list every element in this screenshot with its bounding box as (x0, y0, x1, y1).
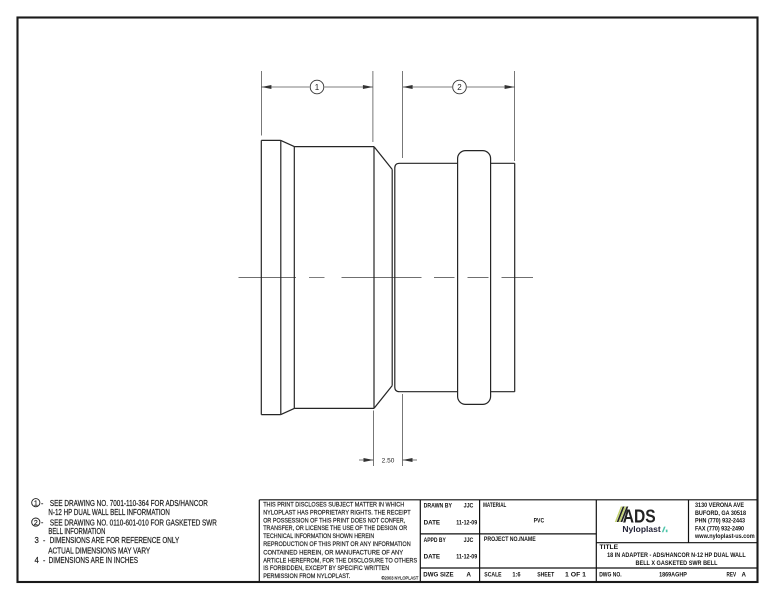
svg-text:SEE DRAWING NO. 7001-110-364 F: SEE DRAWING NO. 7001-110-364 FOR ADS/HAN… (50, 499, 208, 508)
svg-text:PERMISSION FROM NYLOPLAST.: PERMISSION FROM NYLOPLAST. (263, 573, 350, 580)
svg-text:2: 2 (457, 83, 462, 92)
svg-text:PHN (770) 932-2443: PHN (770) 932-2443 (695, 517, 745, 524)
svg-text:4: 4 (35, 556, 40, 565)
svg-text:JJC: JJC (464, 537, 474, 544)
svg-text:PROJECT NO./NAME: PROJECT NO./NAME (484, 536, 536, 543)
svg-text:REPRODUCTION OF THIS PRINT OR: REPRODUCTION OF THIS PRINT OR ANY INFORM… (263, 541, 411, 548)
svg-text:3: 3 (35, 536, 39, 545)
svg-text:BUFORD, GA 30518: BUFORD, GA 30518 (695, 510, 746, 517)
svg-text:Nyloplast: Nyloplast (622, 524, 661, 534)
svg-text:SEE DRAWING NO. 0110-601-010 F: SEE DRAWING NO. 0110-601-010 FOR GASKETE… (50, 518, 217, 527)
svg-text:SCALE: SCALE (484, 571, 502, 578)
svg-text:DIMENSIONS ARE IN INCHES: DIMENSIONS ARE IN INCHES (49, 556, 139, 565)
svg-text:2: 2 (34, 520, 38, 527)
svg-text:18 IN ADAPTER - ADS/HANCOR N-1: 18 IN ADAPTER - ADS/HANCOR N-12 HP DUAL … (607, 552, 746, 559)
svg-text:A: A (741, 572, 746, 579)
svg-text:3130 VERONA AVE: 3130 VERONA AVE (695, 502, 744, 509)
svg-text:TITLE: TITLE (600, 544, 619, 551)
svg-text:CONTAINED HEREIN, OR MANUFACTU: CONTAINED HEREIN, OR MANUFACTURE OF ANY (263, 549, 404, 556)
svg-text:DWG NO.: DWG NO. (599, 572, 622, 579)
svg-text:DATE: DATE (424, 519, 441, 526)
svg-text:1869AGHP: 1869AGHP (659, 572, 687, 579)
svg-text:OR POSSESSION OF THIS PRINT DO: OR POSSESSION OF THIS PRINT DOES NOT CON… (263, 517, 405, 524)
svg-text:FAX (770) 932-2490: FAX (770) 932-2490 (695, 525, 744, 532)
svg-text:11-12-09: 11-12-09 (456, 519, 477, 526)
svg-text:DRAWN BY: DRAWN BY (424, 502, 453, 509)
svg-text:1 OF 1: 1 OF 1 (565, 571, 586, 578)
svg-text:NYLOPLAST HAS PROPRIETARY RIGH: NYLOPLAST HAS PROPRIETARY RIGHTS. THE RE… (263, 509, 411, 516)
svg-text:PVC: PVC (534, 517, 545, 524)
svg-text:ARTICLE HEREFROM, FOR THE DISC: ARTICLE HEREFROM, FOR THE DISCLOSURE TO … (263, 557, 417, 564)
svg-text:A: A (466, 571, 471, 578)
svg-text:SHEET: SHEET (537, 571, 554, 578)
svg-text:DWG SIZE: DWG SIZE (423, 571, 454, 578)
svg-text:©2003 NYLOPLAST: ©2003 NYLOPLAST (382, 575, 419, 580)
svg-text:JJC: JJC (464, 502, 474, 509)
svg-text:THIS PRINT DISCLOSES SUBJECT M: THIS PRINT DISCLOSES SUBJECT MATTER IN W… (263, 501, 404, 508)
svg-text:TECHNICAL INFORMATION SHOWN HE: TECHNICAL INFORMATION SHOWN HEREIN (263, 533, 374, 540)
svg-text:ACTUAL DIMENSIONS MAY VARY: ACTUAL DIMENSIONS MAY VARY (48, 546, 151, 555)
svg-text:DIMENSIONS ARE FOR REFERENCE O: DIMENSIONS ARE FOR REFERENCE ONLY (50, 536, 180, 545)
svg-text:BELL X GASKETED SWR BELL: BELL X GASKETED SWR BELL (636, 560, 718, 567)
svg-text:DATE: DATE (424, 554, 441, 561)
svg-text:www.nyloplast-us.com: www.nyloplast-us.com (694, 533, 755, 540)
svg-text:11-12-09: 11-12-09 (456, 554, 477, 561)
svg-text:REV: REV (727, 572, 737, 579)
svg-text:BELL INFORMATION: BELL INFORMATION (48, 527, 105, 536)
svg-text:IS FORBIDDEN, EXCEPT BY SPECIF: IS FORBIDDEN, EXCEPT BY SPECIFIC WRITTEN (263, 565, 389, 572)
svg-text:1:6: 1:6 (512, 571, 521, 578)
svg-text:2.50: 2.50 (382, 458, 395, 465)
svg-text:APPD BY: APPD BY (424, 537, 447, 544)
svg-text:1: 1 (34, 500, 38, 507)
svg-text:MATERIAL: MATERIAL (483, 502, 506, 509)
svg-text:N-12 HP DUAL WALL BELL INFORMA: N-12 HP DUAL WALL BELL INFORMATION (48, 508, 169, 517)
svg-text:TRANSFER, OR LICENSE THE USE O: TRANSFER, OR LICENSE THE USE OF THE DESI… (263, 525, 407, 532)
svg-text:1: 1 (315, 83, 320, 92)
